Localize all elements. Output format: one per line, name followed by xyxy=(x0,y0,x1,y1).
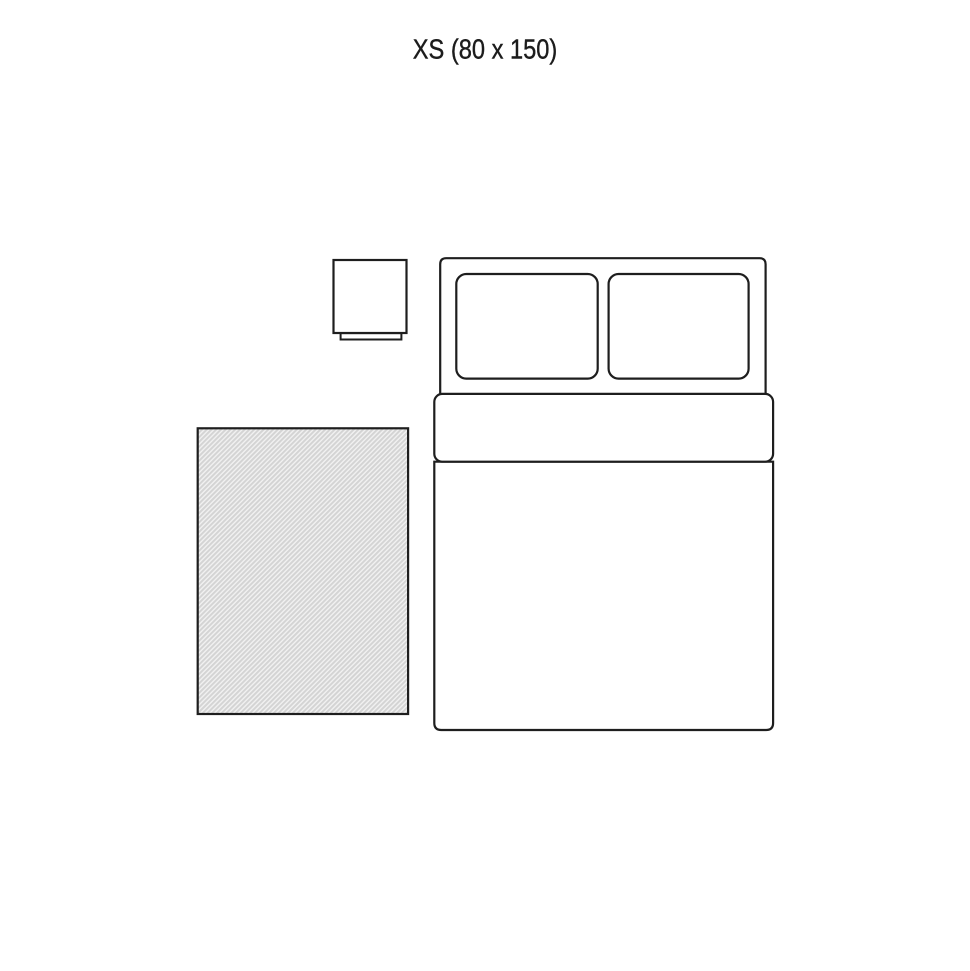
svg-text:XS (80 x 150): XS (80 x 150) xyxy=(413,34,558,65)
